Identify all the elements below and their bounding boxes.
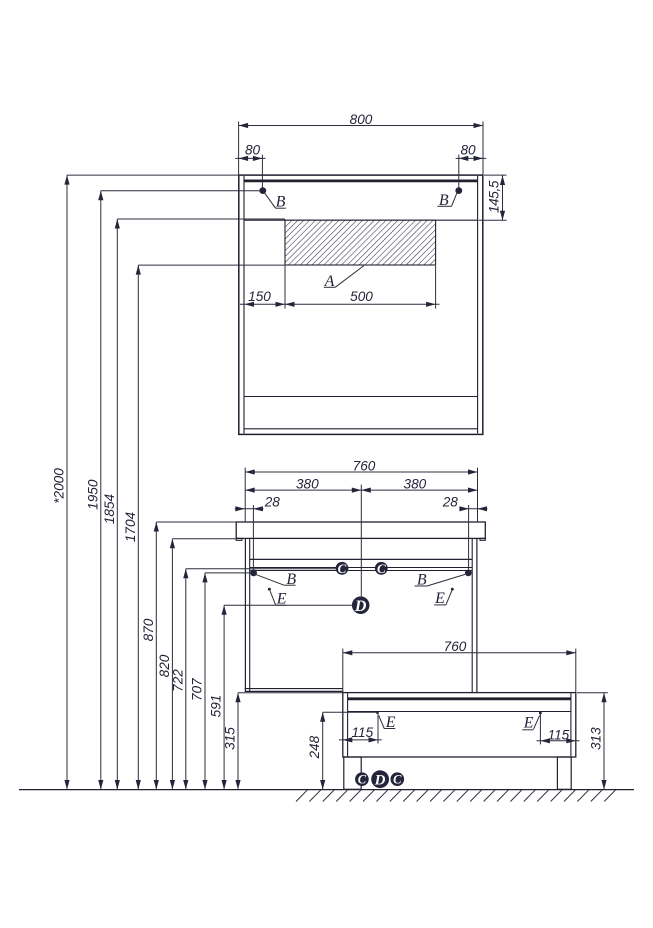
- svg-text:A: A: [324, 273, 335, 290]
- svg-text:313: 313: [589, 727, 604, 750]
- svg-text:800: 800: [350, 112, 373, 127]
- svg-text:1854: 1854: [102, 493, 117, 524]
- svg-text:1704: 1704: [123, 511, 138, 542]
- svg-text:B: B: [276, 193, 286, 210]
- svg-text:707: 707: [190, 678, 205, 701]
- svg-text:248: 248: [307, 735, 322, 759]
- svg-text:D: D: [354, 598, 367, 615]
- svg-text:760: 760: [353, 458, 376, 473]
- svg-text:870: 870: [141, 618, 156, 641]
- svg-text:145,5: 145,5: [487, 180, 502, 213]
- svg-text:1950: 1950: [85, 479, 100, 510]
- svg-text:28: 28: [264, 495, 281, 510]
- svg-text:150: 150: [248, 289, 271, 304]
- svg-text:80: 80: [460, 142, 476, 157]
- svg-text:C: C: [338, 561, 347, 576]
- svg-text:380: 380: [296, 477, 319, 492]
- svg-text:E: E: [276, 590, 287, 607]
- svg-text:500: 500: [350, 289, 373, 304]
- svg-text:B: B: [439, 192, 449, 209]
- svg-text:380: 380: [404, 477, 427, 492]
- svg-text:E: E: [434, 590, 445, 607]
- svg-text:115: 115: [548, 727, 570, 742]
- svg-text:722: 722: [170, 669, 185, 692]
- svg-text:B: B: [417, 572, 427, 589]
- svg-text:C: C: [377, 561, 386, 576]
- svg-text:C: C: [358, 773, 367, 787]
- svg-text:C: C: [393, 773, 402, 787]
- svg-text:B: B: [286, 571, 296, 588]
- svg-text:315: 315: [223, 727, 238, 750]
- svg-text:760: 760: [444, 639, 467, 654]
- svg-text:115: 115: [351, 725, 373, 740]
- svg-text:28: 28: [442, 495, 459, 510]
- svg-text:E: E: [385, 714, 396, 731]
- svg-text:80: 80: [245, 142, 261, 157]
- svg-text:D: D: [374, 773, 386, 789]
- svg-text:591: 591: [209, 695, 224, 718]
- svg-text:E: E: [523, 715, 534, 732]
- svg-text:*2000: *2000: [52, 468, 67, 504]
